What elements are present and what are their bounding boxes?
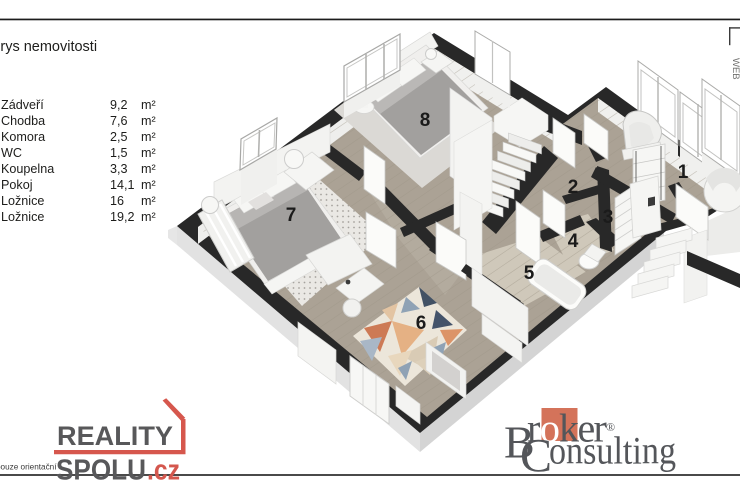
svg-text:9,2: 9,2 — [110, 98, 128, 112]
svg-text:SPOLU: SPOLU — [56, 455, 146, 487]
svg-text:m²: m² — [141, 98, 156, 112]
svg-text:Ložnice: Ložnice — [1, 210, 44, 224]
svg-text:m²: m² — [141, 130, 156, 144]
svg-text:m²: m² — [141, 162, 156, 176]
svg-text:C: C — [520, 430, 552, 483]
svg-text:2: 2 — [568, 177, 579, 198]
svg-text:19,2: 19,2 — [110, 210, 135, 224]
svg-text:3,3: 3,3 — [110, 162, 128, 176]
svg-text:1: 1 — [678, 162, 689, 183]
svg-text:m²: m² — [141, 194, 156, 208]
svg-text:7,6: 7,6 — [110, 114, 128, 128]
svg-text:m²: m² — [141, 178, 156, 192]
svg-text:Pokoj: Pokoj — [1, 178, 33, 192]
svg-text:6: 6 — [416, 313, 427, 334]
svg-text:onsulting: onsulting — [549, 430, 676, 473]
svg-text:7: 7 — [286, 205, 297, 226]
svg-text:8: 8 — [420, 110, 431, 131]
svg-text:Chodba: Chodba — [1, 114, 45, 128]
svg-text:m²: m² — [141, 114, 156, 128]
svg-text:Půdorys nemovitosti: Půdorys nemovitosti — [0, 39, 97, 55]
svg-text:14,1: 14,1 — [110, 178, 135, 192]
svg-text:m²: m² — [141, 210, 156, 224]
svg-text:Koupelna: Koupelna — [1, 162, 54, 176]
svg-text:.cz: .cz — [147, 455, 180, 487]
svg-text:Komora: Komora — [1, 130, 45, 144]
svg-text:m²: m² — [141, 146, 156, 160]
svg-text:1,5: 1,5 — [110, 146, 128, 160]
svg-text:16: 16 — [110, 194, 124, 208]
svg-text:Zádveří: Zádveří — [1, 98, 44, 112]
svg-text:2,5: 2,5 — [110, 130, 128, 144]
svg-text:WC: WC — [1, 146, 22, 160]
svg-text:5: 5 — [524, 263, 535, 284]
svg-text:3: 3 — [603, 207, 614, 228]
svg-text:Ložnice: Ložnice — [1, 194, 44, 208]
svg-text:WEB: WEB — [730, 58, 740, 80]
svg-text:4: 4 — [568, 231, 579, 252]
svg-text:Půdorys je pouze orientační: Půdorys je pouze orientační — [0, 462, 57, 472]
svg-text:REALITY: REALITY — [57, 421, 173, 451]
